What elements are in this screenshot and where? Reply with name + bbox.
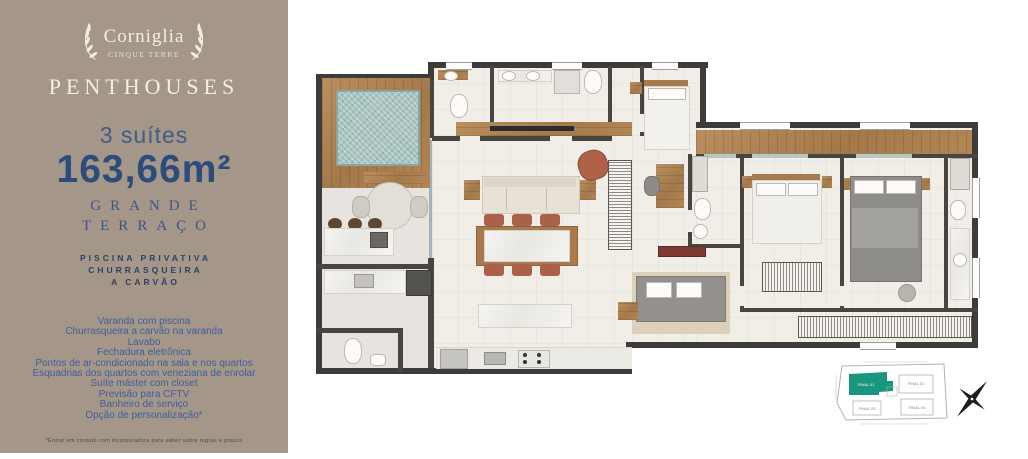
balcony-window [704,154,736,158]
side-table [580,180,596,200]
window [972,258,980,298]
closet-rack [762,262,822,292]
balcony-window [752,154,808,158]
collection-title: PENTHOUSES [0,74,288,100]
sofa-cushion-seam [506,188,507,210]
stove-burner [537,353,541,357]
utility-cabinet [406,270,432,296]
shower-stall [554,70,580,94]
unit-label: FINAL 01 [858,382,876,387]
charcoal-grill [370,232,388,248]
outdoor-chair [410,196,428,218]
bathroom-toilet [584,70,602,94]
side-table [464,180,480,200]
shower-stall [950,158,970,190]
sofa-cushion-seam [546,188,547,210]
window [860,122,910,130]
brand-name: Corniglia [104,26,185,48]
bed-pillow [756,183,786,196]
dining-table-top [484,230,570,262]
shower-stall [692,156,708,192]
sofa-pillow [676,282,702,298]
disclaimer-text: *Entrar em contato com incorporadora par… [0,438,288,444]
terrace-label-line2: TERRAÇO [0,218,288,235]
window [972,178,980,218]
balcony-window [856,154,912,158]
kitchen-island [478,304,572,328]
brand-tagline: CINQUE TERRE [104,50,185,59]
key-plan: FINAL 01 FINAL 02 FINAL 03 FINAL 04 [835,361,950,425]
terrace-label-line1: GRANDE [0,198,288,215]
info-panel: Corniglia CINQUE TERRE PENTHOUSES 3 suít… [0,0,288,453]
unit-label: FINAL 03 [859,406,877,411]
floor-plan [300,58,1000,406]
laurel-right-icon [189,22,213,62]
bathroom-sink [693,224,708,239]
window [446,62,472,70]
lavabo-toilet [450,94,468,118]
wall [626,342,978,348]
brand-text-block: Corniglia CINQUE TERRE [104,26,185,59]
door-opening [740,286,744,306]
window [740,122,790,130]
laurel-left-icon [75,22,99,62]
bathroom-sink [502,71,516,81]
door-opening [460,136,480,141]
laundry-sink [354,274,374,288]
window [552,62,582,70]
bathroom-sink [526,71,540,81]
wall [696,122,978,128]
bed-pillow [788,183,818,196]
bathroom-toilet [950,200,966,220]
bed-blanket [852,208,918,248]
highlight-line1: PISCINA PRIVATIVA [0,253,288,263]
nightstand [742,176,752,188]
sofa-back [484,178,576,187]
suites-count: 3 suítes [0,122,288,149]
highlight-line3: A CARVÃO [0,277,288,287]
door-opening [550,136,572,141]
private-pool [336,90,420,166]
nightstand [630,82,642,94]
dining-chair [512,264,532,276]
terrace-deck-strip [696,130,972,154]
dining-chair [540,264,560,276]
stove-burner [537,360,541,364]
refrigerator [440,349,468,369]
stove-burner [523,353,527,357]
key-plan-diagram: FINAL 01 FINAL 02 FINAL 03 FINAL 04 [835,361,950,425]
service-toilet [344,338,362,364]
bed-pillow [648,88,686,100]
interior-wall [944,154,948,312]
sofa-pillow [646,282,672,298]
bed-pillow [854,180,884,194]
interior-wall [740,308,978,312]
pantry-cabinet [608,160,632,250]
bathroom-sink [953,253,967,267]
bathroom-toilet [694,198,711,220]
desk-chair [644,176,660,196]
side-table [618,302,638,320]
unit-label: FINAL 02 [908,381,926,386]
compass-icon [947,374,997,424]
outdoor-chair [352,196,370,218]
unit-label: FINAL 04 [909,405,927,410]
window [652,62,678,70]
window [860,342,896,350]
nightstand [822,176,832,188]
wall [700,62,706,128]
tv-console [658,246,706,257]
tv-screen [490,126,574,131]
lavabo-sink [444,71,458,81]
door-opening [688,210,692,232]
dining-chair [484,264,504,276]
stove-burner [523,360,527,364]
interior-wall [696,154,978,158]
interior-wall [432,136,612,141]
brand-logo: Corniglia CINQUE TERRE [0,22,288,62]
interior-wall [316,328,402,333]
feature-list: Varanda com piscina Churrasqueira a carv… [10,317,278,421]
desk [656,164,684,208]
pouf [898,284,916,302]
interior-wall [398,328,403,373]
kitchen-sink [484,352,506,365]
dining-chair [512,214,532,226]
master-closet-rack [798,316,972,338]
highlight-line2: CHURRASQUEIRA [0,265,288,275]
interior-wall [316,264,434,269]
dining-chair [540,214,560,226]
service-sink [370,354,386,366]
door-opening [840,286,844,306]
feature-item: Opção de personalização* [10,411,278,421]
unit-area: 163,66m² [0,148,288,192]
dining-chair [484,214,504,226]
bed-pillow [886,180,916,194]
